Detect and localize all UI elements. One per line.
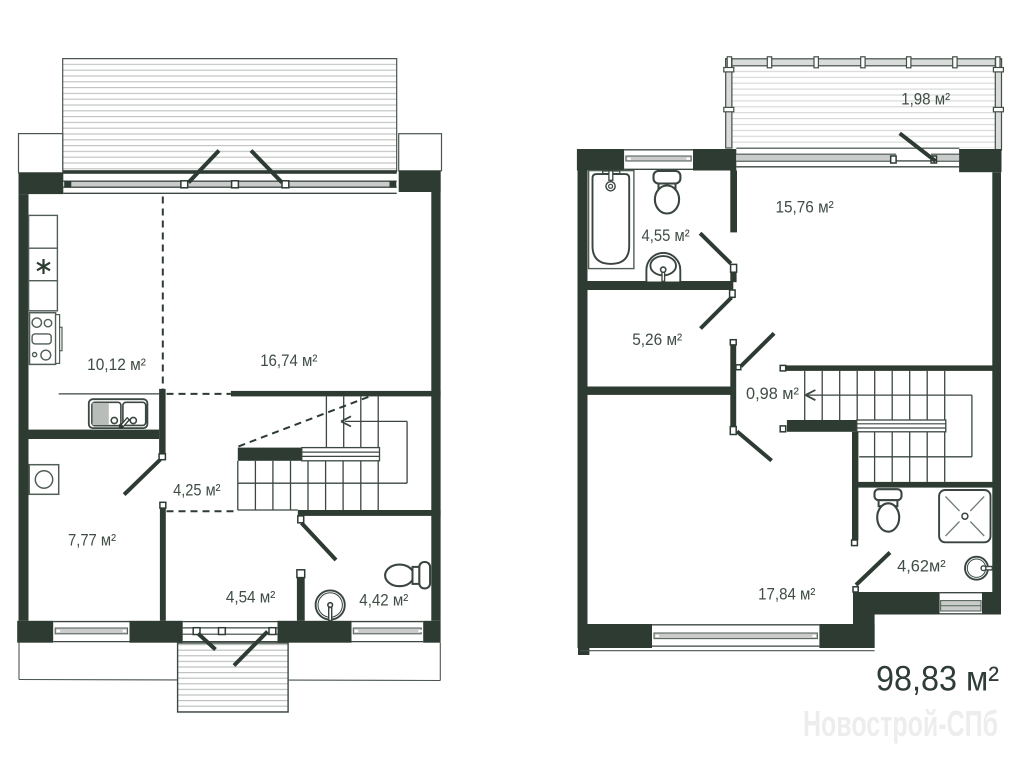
svg-text:16,74 м²: 16,74 м²: [260, 351, 317, 370]
svg-text:Новострой-СПб: Новострой-СПб: [803, 703, 998, 744]
svg-text:4,62м²: 4,62м²: [897, 557, 946, 576]
svg-text:1,98 м²: 1,98 м²: [901, 90, 950, 109]
svg-text:17,84 м²: 17,84 м²: [758, 585, 816, 604]
svg-text:0,98 м²: 0,98 м²: [746, 384, 799, 403]
svg-text:7,77 м²: 7,77 м²: [68, 531, 116, 550]
svg-text:4,25 м²: 4,25 м²: [173, 480, 221, 499]
svg-text:4,54 м²: 4,54 м²: [226, 588, 276, 607]
svg-text:98,83 м²: 98,83 м²: [876, 660, 999, 699]
svg-text:4,42 м²: 4,42 м²: [359, 590, 408, 609]
svg-text:15,76 м²: 15,76 м²: [775, 197, 834, 216]
svg-text:4,55 м²: 4,55 м²: [642, 226, 690, 245]
svg-text:5,26 м²: 5,26 м²: [632, 330, 682, 349]
svg-text:10,12 м²: 10,12 м²: [87, 355, 146, 374]
